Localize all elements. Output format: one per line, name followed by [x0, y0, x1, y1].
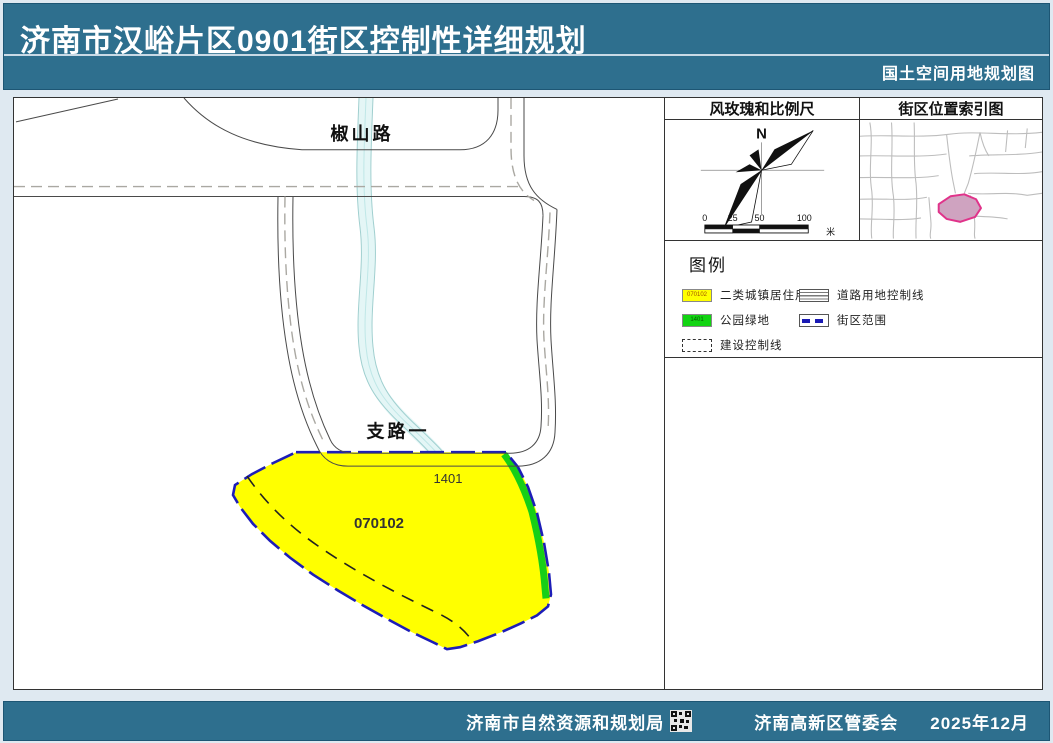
legend-swatch-code: 070102: [687, 292, 707, 298]
footer-date: 2025年12月: [930, 709, 1029, 734]
footer-bar: 济南市自然资源和规划局 济南高新区管委会 2025年12月: [3, 701, 1050, 741]
scale-tick-25: 25: [728, 213, 738, 223]
plan-sheet-frame: 椒山路 支路一 070102 1401 风玫瑰和比例尺 N: [13, 97, 1043, 690]
header-subtitle-row: 国土空间用地规划图: [4, 56, 1049, 89]
legend-swatch-block-range: [799, 314, 829, 327]
right-panel-top-row: 风玫瑰和比例尺 N: [665, 98, 1042, 241]
windrose-panel-body: N 0 25: [665, 120, 859, 242]
legend-swatch-construction-control: [682, 339, 712, 352]
windrose-panel-title: 风玫瑰和比例尺: [665, 98, 859, 120]
page-subtitle: 国土空间用地规划图: [882, 60, 1035, 84]
planning-map: 椒山路 支路一 070102 1401: [14, 98, 664, 689]
road-control-dashes: [14, 98, 550, 442]
legend-item-road-control: 道路用地控制线: [799, 287, 925, 303]
legend-item-park-green: 1401 公园绿地: [682, 312, 770, 328]
legend-swatch-road-control: [799, 289, 829, 302]
footer-agency-right: 济南高新区管委会: [754, 709, 898, 734]
scale-tick-100: 100: [797, 213, 812, 223]
legend-title: 图例: [689, 251, 727, 276]
parcel-070102: [233, 452, 551, 649]
legend-swatch-code: 1401: [690, 317, 703, 323]
header-title-row: 济南市汉峪片区0901街区控制性详细规划: [4, 4, 1049, 54]
page-title: 济南市汉峪片区0901街区控制性详细规划: [20, 16, 587, 60]
legend-swatch-residential: 070102: [682, 289, 712, 302]
index-map-panel-title: 街区位置索引图: [860, 98, 1042, 120]
right-panel: 风玫瑰和比例尺 N: [664, 98, 1042, 689]
scale-unit: 米: [826, 226, 835, 237]
parcel-label-1401: 1401: [434, 471, 463, 486]
windrose-graphic: N 0 25: [665, 120, 859, 242]
seal-qr-icon: [670, 710, 692, 732]
legend-item-label: 街区范围: [837, 312, 887, 328]
road-label-branch1: 支路一: [366, 420, 430, 441]
north-label: N: [756, 125, 767, 142]
index-map-panel-body: [860, 120, 1042, 241]
footer-agency-left: 济南市自然资源和规划局: [466, 709, 664, 734]
legend-item-block-range: 街区范围: [799, 312, 887, 328]
index-map-graphic: [860, 120, 1042, 241]
planning-map-canvas: 椒山路 支路一 070102 1401: [14, 98, 664, 688]
scale-tick-50: 50: [755, 213, 765, 223]
legend-item-label: 道路用地控制线: [837, 287, 925, 303]
road-label-jiaoshan: 椒山路: [331, 123, 394, 144]
header-bar: 济南市汉峪片区0901街区控制性详细规划 国土空间用地规划图: [3, 3, 1050, 90]
legend-panel: 图例 070102 二类城镇居住用地 道路用地控制线 1401 公园绿地 街区范…: [665, 241, 1042, 358]
legend-swatch-park-green: 1401: [682, 314, 712, 327]
legend-item-construction-control: 建设控制线: [682, 337, 783, 353]
index-map-panel: 街区位置索引图: [860, 98, 1042, 240]
parcel-label-070102: 070102: [354, 515, 404, 532]
index-highlight-parcel: [939, 194, 981, 222]
legend-item-label: 建设控制线: [720, 337, 783, 353]
road-network: [14, 98, 557, 466]
windrose-panel: 风玫瑰和比例尺 N: [665, 98, 860, 240]
legend-item-label: 公园绿地: [720, 312, 770, 328]
scale-tick-0: 0: [702, 213, 707, 223]
scale-bar: 0 25 50 100 米: [702, 213, 835, 237]
